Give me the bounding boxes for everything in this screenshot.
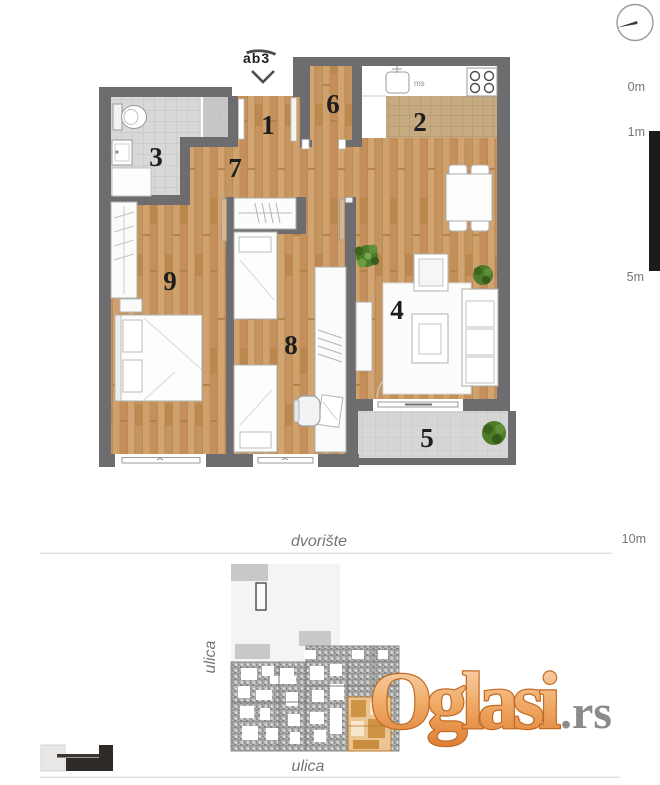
svg-text:Oglasi: Oglasi: [369, 655, 560, 746]
svg-text:7: 7: [228, 153, 242, 183]
svg-text:5m: 5m: [627, 270, 644, 284]
svg-text:0m: 0m: [628, 80, 645, 94]
svg-text:dvorište: dvorište: [291, 533, 347, 550]
svg-text:8: 8: [284, 330, 298, 360]
svg-text:6: 6: [326, 89, 340, 119]
svg-text:1: 1: [261, 110, 275, 140]
svg-text:ab3: ab3: [243, 50, 270, 66]
svg-text:10m: 10m: [622, 532, 646, 546]
svg-text:9: 9: [163, 266, 177, 296]
svg-text:ulica: ulica: [292, 758, 325, 775]
svg-text:4: 4: [390, 295, 404, 325]
svg-text:.rs: .rs: [560, 686, 612, 739]
svg-text:1m: 1m: [628, 125, 645, 139]
svg-text:3: 3: [149, 142, 163, 172]
svg-text:ms: ms: [414, 79, 425, 88]
svg-text:ulica: ulica: [202, 640, 219, 673]
svg-text:5: 5: [420, 423, 434, 453]
svg-text:2: 2: [413, 107, 427, 137]
